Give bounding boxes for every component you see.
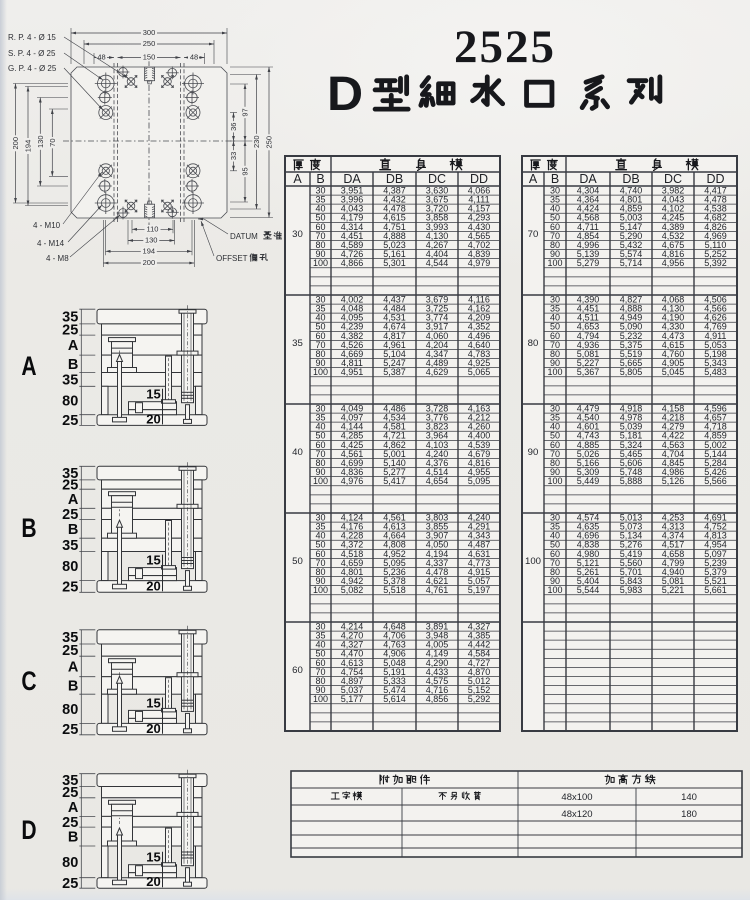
svg-text:G. P. 4 - Ø 25: G. P. 4 - Ø 25 (8, 64, 57, 73)
svg-text:5,392: 5,392 (704, 258, 727, 268)
svg-text:4 - M14: 4 - M14 (37, 239, 65, 248)
svg-text:25: 25 (62, 323, 78, 339)
svg-text:20: 20 (146, 411, 160, 426)
svg-text:5,279: 5,279 (577, 258, 600, 268)
svg-text:5,292: 5,292 (468, 694, 491, 704)
svg-text:5,614: 5,614 (383, 694, 406, 704)
svg-text:100: 100 (547, 585, 562, 595)
svg-text:5,983: 5,983 (620, 585, 643, 595)
svg-text:100: 100 (547, 476, 562, 486)
svg-text:4,866: 4,866 (341, 258, 364, 268)
svg-text:A: A (68, 338, 79, 354)
svg-text:180: 180 (681, 809, 697, 820)
svg-text:15: 15 (146, 387, 160, 402)
svg-text:25: 25 (62, 507, 78, 523)
svg-text:A: A (68, 800, 79, 816)
svg-text:5,544: 5,544 (577, 585, 600, 595)
svg-text:4,951: 4,951 (341, 367, 364, 377)
svg-text:D: D (327, 68, 363, 121)
svg-text:40: 40 (292, 447, 303, 458)
svg-text:5,301: 5,301 (383, 258, 406, 268)
svg-text:25: 25 (62, 876, 78, 892)
svg-text:230: 230 (252, 135, 261, 148)
svg-text:5,197: 5,197 (468, 585, 491, 595)
svg-text:100: 100 (547, 258, 562, 268)
svg-text:5,805: 5,805 (620, 367, 643, 377)
svg-text:100: 100 (313, 585, 328, 595)
svg-text:194: 194 (143, 246, 156, 255)
svg-text:20: 20 (146, 578, 160, 593)
svg-text:5,661: 5,661 (704, 585, 727, 595)
svg-text:5,221: 5,221 (662, 585, 685, 595)
svg-text:4 - M10: 4 - M10 (33, 221, 61, 230)
svg-text:48: 48 (97, 53, 105, 62)
svg-text:A: A (529, 172, 538, 186)
svg-text:25: 25 (62, 722, 78, 738)
svg-text:30: 30 (292, 229, 303, 240)
svg-text:48: 48 (190, 53, 198, 62)
svg-text:100: 100 (313, 367, 328, 377)
svg-text:250: 250 (143, 39, 156, 48)
svg-text:5,126: 5,126 (662, 476, 685, 486)
svg-text:DD: DD (706, 172, 724, 186)
svg-text:5,483: 5,483 (704, 367, 727, 377)
svg-text:4,976: 4,976 (341, 476, 364, 486)
svg-text:S. P. 4 - Ø 25: S. P. 4 - Ø 25 (8, 49, 56, 58)
svg-text:DD: DD (470, 172, 488, 186)
svg-text:5,888: 5,888 (620, 476, 643, 486)
svg-text:DC: DC (428, 172, 446, 186)
svg-text:5,518: 5,518 (383, 585, 406, 595)
svg-text:33: 33 (229, 152, 238, 160)
svg-text:DATUM: DATUM (230, 232, 258, 241)
svg-text:4 - M8: 4 - M8 (46, 254, 69, 263)
svg-text:70: 70 (528, 229, 539, 240)
svg-text:5,417: 5,417 (383, 476, 406, 486)
svg-text:A: A (68, 492, 79, 508)
svg-text:4,856: 4,856 (426, 694, 449, 704)
svg-text:95: 95 (241, 167, 250, 175)
svg-text:36: 36 (229, 123, 238, 131)
svg-text:B: B (68, 357, 78, 373)
svg-text:48x120: 48x120 (561, 809, 592, 820)
svg-text:25: 25 (62, 643, 78, 659)
svg-text:15: 15 (146, 850, 160, 865)
svg-text:80: 80 (62, 559, 78, 575)
svg-text:4,629: 4,629 (426, 367, 449, 377)
svg-text:194: 194 (24, 140, 33, 153)
svg-text:5,095: 5,095 (468, 476, 491, 486)
svg-text:20: 20 (146, 721, 160, 736)
svg-text:35: 35 (292, 338, 303, 349)
svg-text:80: 80 (62, 394, 78, 410)
svg-text:5,714: 5,714 (620, 258, 643, 268)
svg-text:48x100: 48x100 (561, 792, 592, 803)
svg-text:25: 25 (62, 413, 78, 429)
svg-text:100: 100 (525, 556, 541, 567)
svg-text:DB: DB (622, 172, 639, 186)
svg-text:60: 60 (292, 665, 303, 676)
svg-text:100: 100 (313, 258, 328, 268)
svg-text:25: 25 (62, 785, 78, 801)
svg-text:B: B (68, 679, 78, 695)
svg-text:25: 25 (62, 815, 78, 831)
svg-text:5,387: 5,387 (383, 367, 406, 377)
svg-text:25: 25 (62, 579, 78, 595)
svg-text:OFFSET: OFFSET (216, 254, 248, 263)
svg-text:B: B (68, 522, 78, 538)
svg-text:5,566: 5,566 (704, 476, 727, 486)
svg-text:97: 97 (241, 108, 250, 116)
svg-text:150: 150 (143, 53, 156, 62)
svg-text:100: 100 (313, 694, 328, 704)
svg-text:50: 50 (292, 556, 303, 567)
svg-text:15: 15 (146, 553, 160, 568)
svg-text:DA: DA (343, 172, 361, 186)
svg-text:B: B (68, 830, 78, 846)
svg-text:A: A (293, 172, 302, 186)
svg-text:R. P. 4 - Ø 15: R. P. 4 - Ø 15 (8, 33, 56, 42)
svg-text:B: B (316, 172, 324, 186)
svg-text:300: 300 (143, 28, 156, 37)
svg-text:100: 100 (547, 367, 562, 377)
svg-text:20: 20 (146, 874, 160, 889)
svg-text:5,367: 5,367 (577, 367, 600, 377)
svg-text:15: 15 (146, 695, 160, 710)
svg-text:140: 140 (681, 792, 697, 803)
svg-text:70: 70 (48, 138, 57, 146)
svg-text:35: 35 (62, 372, 78, 388)
svg-text:250: 250 (265, 136, 274, 149)
svg-text:DA: DA (579, 172, 597, 186)
svg-text:5,177: 5,177 (341, 694, 364, 704)
svg-text:80: 80 (528, 338, 539, 349)
svg-text:5,065: 5,065 (468, 367, 491, 377)
svg-text:200: 200 (11, 137, 20, 150)
svg-text:110: 110 (147, 224, 159, 233)
svg-text:130: 130 (145, 236, 158, 245)
svg-text:5,082: 5,082 (341, 585, 364, 595)
svg-text:200: 200 (143, 258, 156, 267)
svg-text:80: 80 (62, 702, 78, 718)
svg-text:B: B (551, 172, 559, 186)
svg-text:5,045: 5,045 (662, 367, 685, 377)
svg-text:80: 80 (62, 855, 78, 871)
svg-text:4,654: 4,654 (426, 476, 449, 486)
svg-text:35: 35 (62, 538, 78, 554)
svg-text:130: 130 (36, 135, 45, 148)
svg-text:90: 90 (528, 447, 539, 458)
svg-text:4,761: 4,761 (426, 585, 449, 595)
svg-text:100: 100 (313, 476, 328, 486)
svg-text:DC: DC (664, 172, 682, 186)
svg-text:DB: DB (386, 172, 403, 186)
svg-text:4,956: 4,956 (662, 258, 685, 268)
svg-text:A: A (68, 660, 79, 676)
svg-text:5,449: 5,449 (577, 476, 600, 486)
svg-text:4,544: 4,544 (426, 258, 449, 268)
svg-text:4,979: 4,979 (468, 258, 491, 268)
